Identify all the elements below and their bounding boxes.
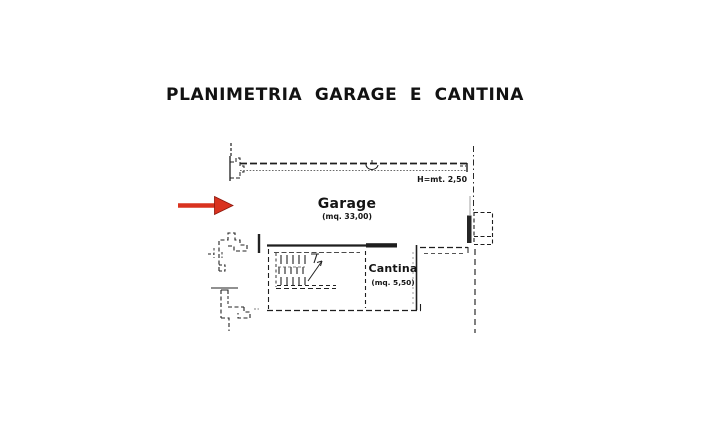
stair-direction-arrow	[308, 261, 322, 281]
cantina-walls	[366, 243, 417, 310]
garage-area-label: (mq. 33,00)	[322, 213, 372, 221]
garage-room-label: Garage	[318, 197, 377, 211]
garage-door-wall	[467, 213, 493, 245]
cantina-room-label: Cantina	[368, 263, 417, 274]
left-wall-fragments	[208, 233, 259, 331]
pointer-arrow-icon	[178, 197, 233, 215]
floorplan-scan: PLANIMETRIA GARAGE E CANTINA	[0, 0, 705, 434]
ceiling-height-label: H=mt. 2,50	[417, 176, 467, 184]
cantina-area-label: (mq. 5,50)	[371, 279, 414, 286]
staircase	[276, 253, 336, 289]
right-annex-walls	[420, 247, 468, 254]
